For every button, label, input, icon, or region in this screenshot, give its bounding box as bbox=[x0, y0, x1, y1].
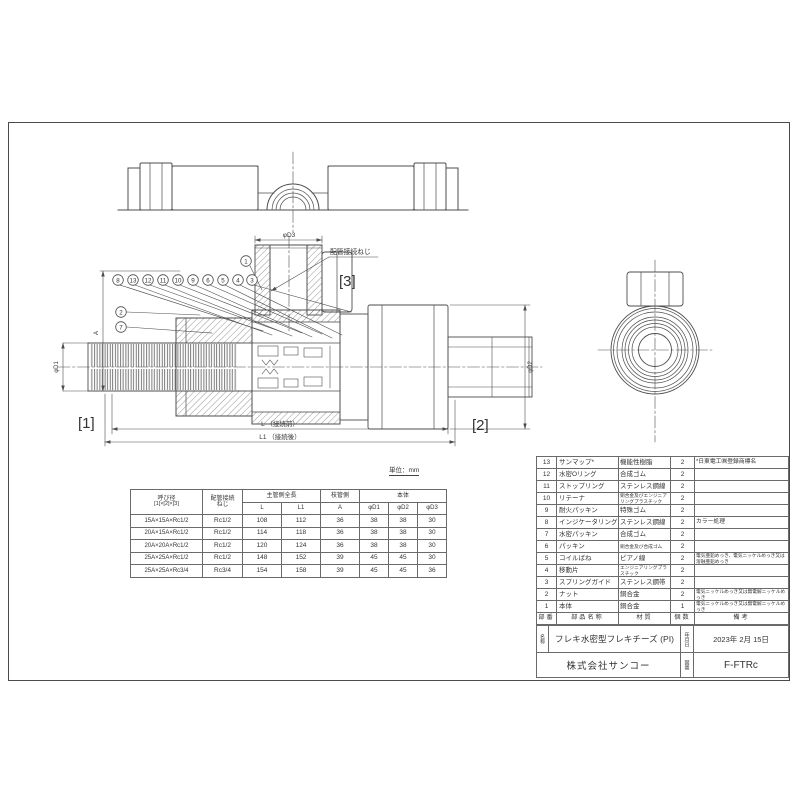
table-cell: 45 bbox=[389, 552, 418, 565]
table-cell: 7 bbox=[537, 529, 557, 541]
table-cell: 13 bbox=[537, 457, 557, 469]
table-cell: 銅合金 bbox=[619, 601, 671, 613]
table-cell bbox=[695, 577, 789, 589]
dim-subheader-l1: L1 bbox=[282, 502, 321, 515]
table-cell bbox=[695, 565, 789, 577]
dim-d1-label: φD1 bbox=[54, 361, 60, 373]
table-cell: 36 bbox=[321, 515, 360, 528]
table-cell: 11 bbox=[537, 481, 557, 493]
table-cell: インジケータリング bbox=[557, 517, 619, 529]
table-cell: 2 bbox=[671, 541, 695, 553]
table-row: 12水密Oリング合成ゴム2 bbox=[537, 469, 789, 481]
table-cell: 36 bbox=[321, 540, 360, 553]
table-cell: 電気ニッケルめっき又は無電解ニッケルめっき bbox=[695, 589, 789, 601]
table-row: 25A×25A×Rc1/2Rc1/214815239454530 bbox=[131, 552, 447, 565]
table-cell: 112 bbox=[282, 515, 321, 528]
table-cell: ピアノ線 bbox=[619, 553, 671, 565]
table-cell: 1 bbox=[537, 601, 557, 613]
title-name-label: 名称 bbox=[537, 626, 549, 653]
callout-2: 2 bbox=[116, 307, 127, 318]
table-row: 15A×15A×Rc1/2Rc1/210811236383830 bbox=[131, 515, 447, 528]
svg-text:12: 12 bbox=[145, 277, 152, 284]
table-cell: サンマップ* bbox=[557, 457, 619, 469]
dim-d3-label: φD3 bbox=[283, 232, 296, 239]
table-row: 20A×15A×Rc1/2Rc1/211411836383830 bbox=[131, 527, 447, 540]
svg-text:8: 8 bbox=[116, 277, 120, 284]
table-row: 4移動片エンジニアリングプラスチック2 bbox=[537, 565, 789, 577]
dim-d2-label: φD2 bbox=[528, 361, 534, 373]
table-cell: 合成ゴム bbox=[619, 469, 671, 481]
parts-header-material: 材質 bbox=[619, 613, 671, 625]
table-cell: 電気ニッケルめっき又は無電解ニッケルめっき bbox=[695, 601, 789, 613]
table-row: 20A×20A×Rc1/2Rc1/212012436383830 bbox=[131, 540, 447, 553]
table-cell: 30 bbox=[418, 540, 447, 553]
table-row: 13サンマップ*機能性樹脂2*日東電工㈱登録商標名 bbox=[537, 457, 789, 469]
dim-l-label: L （接続前） bbox=[261, 419, 299, 428]
table-cell: 45 bbox=[389, 565, 418, 578]
table-cell: 10 bbox=[537, 493, 557, 505]
callout-6: 6 bbox=[203, 275, 214, 286]
table-cell: 45 bbox=[360, 565, 389, 578]
table-cell: 38 bbox=[389, 540, 418, 553]
table-cell: 36 bbox=[321, 527, 360, 540]
dim-subheader-d1: φD1 bbox=[360, 502, 389, 515]
parts-table: 13サンマップ*機能性樹脂2*日東電工㈱登録商標名12水密Oリング合成ゴム211… bbox=[536, 456, 789, 625]
table-cell: 12 bbox=[537, 469, 557, 481]
callout-10: 10 bbox=[173, 275, 184, 286]
table-cell: 148 bbox=[243, 552, 282, 565]
top-view bbox=[118, 152, 468, 232]
parts-table-header-row: 部番 部品名称 材質 個数 備考 bbox=[537, 613, 789, 625]
table-cell: 2 bbox=[671, 577, 695, 589]
table-cell: Rc1/2 bbox=[203, 540, 243, 553]
parts-header-remarks: 備考 bbox=[695, 613, 789, 625]
title-dwgno-label: 図番 bbox=[681, 653, 694, 678]
connector2-label: [2] bbox=[472, 417, 489, 434]
table-cell: エンジニアリングプラスチック bbox=[619, 565, 671, 577]
table-cell: ステンレス鋼帯 bbox=[619, 577, 671, 589]
callout-1: 1 bbox=[241, 256, 252, 267]
parts-header-qty: 個数 bbox=[671, 613, 695, 625]
svg-text:4: 4 bbox=[236, 277, 240, 284]
table-cell: 2 bbox=[671, 589, 695, 601]
table-cell: 合成ゴム bbox=[619, 529, 671, 541]
table-cell: 15A×15A×Rc1/2 bbox=[131, 515, 203, 528]
svg-text:9: 9 bbox=[191, 277, 195, 284]
table-cell: ステンレス鋼線 bbox=[619, 481, 671, 493]
table-row: 10リテーナ銅合金及びエンジニアリングプラスチック2 bbox=[537, 493, 789, 505]
table-cell: 機能性樹脂 bbox=[619, 457, 671, 469]
unit-label: 単位：mm bbox=[389, 464, 419, 476]
table-row: 7水密パッキン合成ゴム2 bbox=[537, 529, 789, 541]
table-row: 5コイルばねピアノ線2電気亜鉛めっき、電気ニッケルめっき又は溶融亜鉛めっき bbox=[537, 553, 789, 565]
dim-subheader-a: A bbox=[321, 502, 360, 515]
table-cell: 移動片 bbox=[557, 565, 619, 577]
pipe-thread-label: 配管接続ねじ bbox=[330, 247, 371, 256]
dim-subheader-d2: φD2 bbox=[389, 502, 418, 515]
table-cell: 30 bbox=[418, 552, 447, 565]
table-cell: 水密Oリング bbox=[557, 469, 619, 481]
table-cell: スプリングガイド bbox=[557, 577, 619, 589]
table-cell: 30 bbox=[418, 527, 447, 540]
table-cell: 20A×20A×Rc1/2 bbox=[131, 540, 203, 553]
table-row: 2ナット銅合金2電気ニッケルめっき又は無電解ニッケルめっき bbox=[537, 589, 789, 601]
callout-11: 11 bbox=[158, 275, 169, 286]
table-row: 25A×25A×Rc3/4Rc3/415415839454536 bbox=[131, 565, 447, 578]
table-cell: 銅合金 bbox=[619, 589, 671, 601]
table-cell: 25A×25A×Rc3/4 bbox=[131, 565, 203, 578]
svg-text:7: 7 bbox=[119, 324, 123, 331]
table-cell: 20A×15A×Rc1/2 bbox=[131, 527, 203, 540]
table-cell: 2 bbox=[671, 529, 695, 541]
dim-header-branch: 枝管側 bbox=[321, 490, 360, 503]
end-view bbox=[598, 260, 712, 442]
table-cell: 6 bbox=[537, 541, 557, 553]
dim-header-thread: 配管接続 ねじ bbox=[203, 490, 243, 515]
drawing-number: F-FTRc bbox=[694, 653, 789, 678]
table-cell: 5 bbox=[537, 553, 557, 565]
callout-4: 4 bbox=[233, 275, 244, 286]
table-cell bbox=[695, 529, 789, 541]
table-row: 8インジケータリングステンレス鋼線2カラー処理 bbox=[537, 517, 789, 529]
connector1-label: [1] bbox=[78, 415, 95, 432]
table-cell: 38 bbox=[389, 515, 418, 528]
dim-subheader-d3: φD3 bbox=[418, 502, 447, 515]
table-cell: 4 bbox=[537, 565, 557, 577]
drawing-title: フレキ水密型フレキチーズ (PI) bbox=[549, 626, 681, 653]
table-cell: Rc1/2 bbox=[203, 552, 243, 565]
table-row: 6パッキン銅合金及び合成ゴム2 bbox=[537, 541, 789, 553]
table-cell: コイルばね bbox=[557, 553, 619, 565]
callout-5: 5 bbox=[218, 275, 229, 286]
dim-header-main: 主管側全長 bbox=[243, 490, 321, 503]
drawing-sheet: { "meta": { "unit_label": "単位：mm" }, "co… bbox=[0, 0, 800, 800]
table-cell: 124 bbox=[282, 540, 321, 553]
table-cell: 2 bbox=[671, 505, 695, 517]
callout-8: 8 bbox=[113, 275, 124, 286]
dim-l1-label: L1 （接続後） bbox=[259, 432, 301, 441]
svg-text:6: 6 bbox=[206, 277, 210, 284]
drawing-date: 2023年 2月 15日 bbox=[694, 626, 789, 653]
table-cell: 8 bbox=[537, 517, 557, 529]
table-cell: Rc1/2 bbox=[203, 515, 243, 528]
table-cell: 特殊ゴム bbox=[619, 505, 671, 517]
table-cell: 2 bbox=[671, 481, 695, 493]
parts-header-name: 部品名称 bbox=[557, 613, 619, 625]
table-cell: 152 bbox=[282, 552, 321, 565]
table-cell: 2 bbox=[671, 517, 695, 529]
table-cell: 36 bbox=[418, 565, 447, 578]
dim-header-body: 本体 bbox=[360, 490, 447, 503]
table-cell bbox=[695, 481, 789, 493]
table-cell: 2 bbox=[671, 457, 695, 469]
table-cell bbox=[695, 505, 789, 517]
table-cell: 25A×25A×Rc1/2 bbox=[131, 552, 203, 565]
callout-12: 12 bbox=[143, 275, 154, 286]
table-cell: 120 bbox=[243, 540, 282, 553]
table-cell bbox=[695, 541, 789, 553]
title-block: 名称 フレキ水密型フレキチーズ (PI) 年月日 2023年 2月 15日 株式… bbox=[536, 625, 789, 678]
table-cell: 2 bbox=[671, 469, 695, 481]
table-cell: 39 bbox=[321, 565, 360, 578]
table-cell: 38 bbox=[360, 540, 389, 553]
table-cell: ストップリング bbox=[557, 481, 619, 493]
table-cell: 108 bbox=[243, 515, 282, 528]
callout-13: 13 bbox=[128, 275, 139, 286]
table-row: 11ストップリングステンレス鋼線2 bbox=[537, 481, 789, 493]
table-cell: 3 bbox=[537, 577, 557, 589]
table-cell: 2 bbox=[671, 553, 695, 565]
table-cell: リテーナ bbox=[557, 493, 619, 505]
dim-a-label: A bbox=[94, 331, 100, 335]
table-cell bbox=[695, 493, 789, 505]
table-cell: 118 bbox=[282, 527, 321, 540]
table-cell: 38 bbox=[360, 527, 389, 540]
table-cell: パッキン bbox=[557, 541, 619, 553]
title-date-label: 年月日 bbox=[681, 626, 694, 653]
title-block-row-1: 名称 フレキ水密型フレキチーズ (PI) 年月日 2023年 2月 15日 bbox=[537, 626, 789, 653]
table-cell: 1 bbox=[671, 601, 695, 613]
table-cell: 114 bbox=[243, 527, 282, 540]
callout-9: 9 bbox=[188, 275, 199, 286]
svg-text:11: 11 bbox=[160, 277, 167, 284]
dim-header-size: 呼び径 [1]×[2]×[3] bbox=[131, 490, 203, 515]
table-cell: 39 bbox=[321, 552, 360, 565]
table-cell: 38 bbox=[389, 527, 418, 540]
table-cell: 銅合金及びエンジニアリングプラスチック bbox=[619, 493, 671, 505]
svg-text:13: 13 bbox=[130, 277, 137, 284]
table-cell: カラー処理 bbox=[695, 517, 789, 529]
table-cell: 9 bbox=[537, 505, 557, 517]
table-cell: Rc1/2 bbox=[203, 527, 243, 540]
svg-text:10: 10 bbox=[175, 277, 182, 284]
table-cell: ナット bbox=[557, 589, 619, 601]
svg-text:5: 5 bbox=[221, 277, 225, 284]
table-cell: 158 bbox=[282, 565, 321, 578]
table-row: 1本体銅合金1電気ニッケルめっき又は無電解ニッケルめっき bbox=[537, 601, 789, 613]
table-cell: 電気亜鉛めっき、電気ニッケルめっき又は溶融亜鉛めっき bbox=[695, 553, 789, 565]
table-row: 9耐火パッキン特殊ゴム2 bbox=[537, 505, 789, 517]
table-cell bbox=[695, 469, 789, 481]
table-cell: 2 bbox=[671, 493, 695, 505]
connector3-label: [3] bbox=[339, 273, 356, 290]
table-cell: 2 bbox=[671, 565, 695, 577]
table-cell: 本体 bbox=[557, 601, 619, 613]
dimension-table: 呼び径 [1]×[2]×[3] 配管接続 ねじ 主管側全長 枝管側 本体 L L… bbox=[130, 489, 447, 578]
table-cell: ステンレス鋼線 bbox=[619, 517, 671, 529]
callout-7: 7 bbox=[116, 322, 127, 333]
table-cell: 銅合金及び合成ゴム bbox=[619, 541, 671, 553]
svg-text:2: 2 bbox=[119, 309, 123, 316]
table-cell: 30 bbox=[418, 515, 447, 528]
parts-header-no: 部番 bbox=[537, 613, 557, 625]
svg-text:3: 3 bbox=[250, 277, 254, 284]
callout-3: 3 bbox=[247, 275, 258, 286]
table-cell: 2 bbox=[537, 589, 557, 601]
table-cell: 耐火パッキン bbox=[557, 505, 619, 517]
table-cell: 水密パッキン bbox=[557, 529, 619, 541]
table-row: 3スプリングガイドステンレス鋼帯2 bbox=[537, 577, 789, 589]
company-name: 株式会社サンコー bbox=[537, 653, 681, 678]
dim-subheader-l: L bbox=[243, 502, 282, 515]
table-cell: 45 bbox=[360, 552, 389, 565]
table-cell: 38 bbox=[360, 515, 389, 528]
technical-drawing: 8 13 12 11 10 9 6 5 4 3 1 2 7 φD3 配管接続ねじ… bbox=[0, 0, 800, 800]
dim-header-row-1: 呼び径 [1]×[2]×[3] 配管接続 ねじ 主管側全長 枝管側 本体 bbox=[131, 490, 447, 503]
table-cell: 154 bbox=[243, 565, 282, 578]
title-block-row-2: 株式会社サンコー 図番 F-FTRc bbox=[537, 653, 789, 678]
table-cell: Rc3/4 bbox=[203, 565, 243, 578]
table-cell: *日東電工㈱登録商標名 bbox=[695, 457, 789, 469]
svg-text:1: 1 bbox=[244, 258, 248, 265]
